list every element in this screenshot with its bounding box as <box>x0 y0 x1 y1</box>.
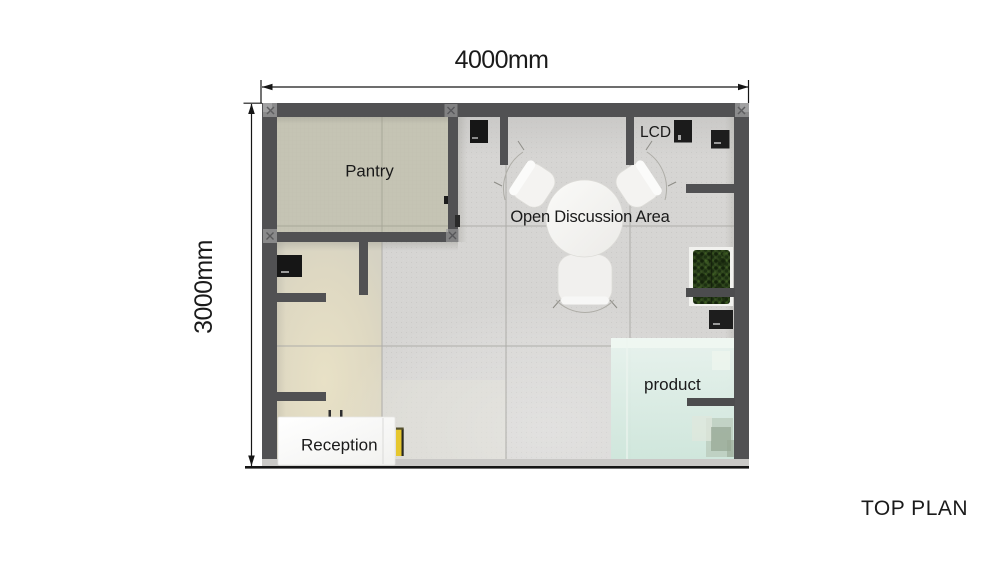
svg-text:product: product <box>644 375 701 394</box>
svg-text:3000mm: 3000mm <box>190 240 218 334</box>
svg-text:4000mm: 4000mm <box>455 46 549 74</box>
svg-text:LCD: LCD <box>640 124 671 141</box>
svg-text:Pantry: Pantry <box>345 162 394 181</box>
svg-text:Reception: Reception <box>301 436 378 455</box>
svg-text:Open Discussion Area: Open Discussion Area <box>510 208 670 226</box>
svg-text:TOP PLAN: TOP PLAN <box>861 497 968 520</box>
